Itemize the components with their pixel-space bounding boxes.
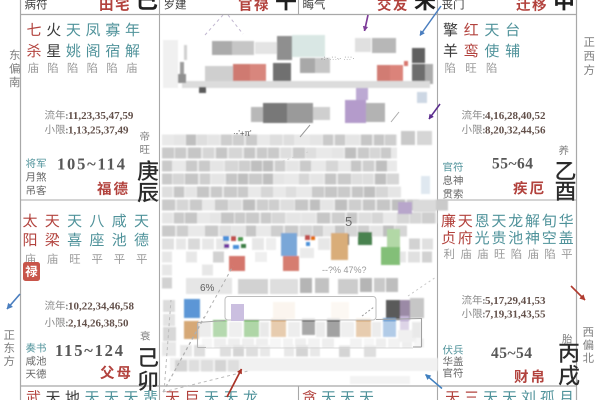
svg-text:5: 5: [345, 214, 352, 229]
svg-text:2,14,26,38,50: 2,14,26,38,50: [68, 318, 129, 330]
svg-text:4,16,28,40,52: 4,16,28,40,52: [485, 110, 546, 122]
svg-text:6%: 6%: [200, 283, 215, 294]
svg-text:5,17,29,41,53: 5,17,29,41,53: [485, 295, 546, 307]
svg-text:1,13,25,37,49: 1,13,25,37,49: [68, 125, 129, 137]
svg-text:8,20,32,44,56: 8,20,32,44,56: [485, 125, 546, 137]
svg-text:·-'+π': ·-'+π': [233, 129, 252, 138]
svg-text:55~64: 55~64: [492, 156, 534, 173]
svg-text:7,19,31,43,55: 7,19,31,43,55: [485, 309, 546, 321]
svg-text:105~114: 105~114: [57, 155, 127, 174]
svg-text:.·. ··.. ···.: .·. ··.. ···.: [321, 54, 355, 61]
svg-text:10,22,34,46,58: 10,22,34,46,58: [68, 301, 135, 313]
svg-text:--?% 47%?: --?% 47%?: [322, 265, 367, 275]
svg-text:45~54: 45~54: [491, 345, 533, 362]
svg-text:115~124: 115~124: [55, 341, 125, 360]
svg-text:11,23,35,47,59: 11,23,35,47,59: [68, 110, 134, 122]
